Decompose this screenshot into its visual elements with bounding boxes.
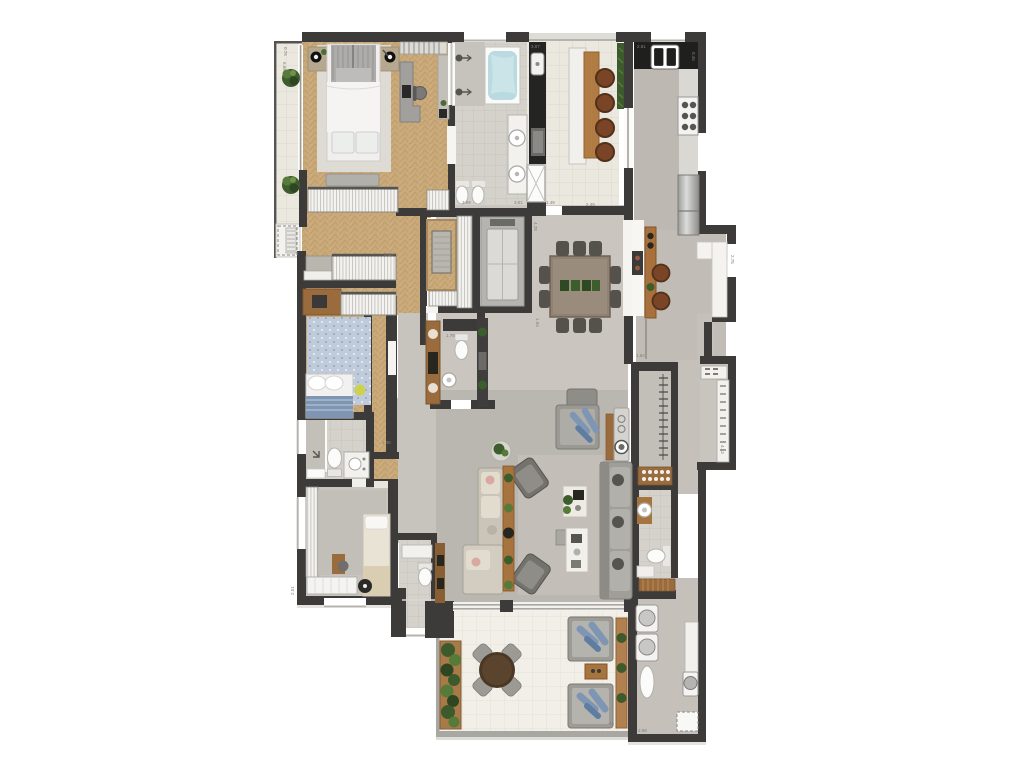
- svg-text:1.94: 1.94: [535, 318, 540, 327]
- svg-text:4.28: 4.28: [533, 222, 538, 231]
- svg-text:1.78: 1.78: [446, 333, 455, 338]
- svg-text:3.50: 3.50: [384, 252, 393, 257]
- svg-text:1.84: 1.84: [636, 353, 645, 358]
- svg-text:1.49: 1.49: [546, 200, 555, 205]
- svg-text:2.49: 2.49: [586, 202, 595, 207]
- svg-text:2.58: 2.58: [638, 728, 647, 733]
- svg-text:2.81: 2.81: [637, 44, 646, 49]
- svg-text:7.63: 7.63: [441, 725, 450, 730]
- svg-text:0.76: 0.76: [283, 47, 288, 56]
- svg-text:0.45: 0.45: [691, 52, 696, 61]
- svg-text:2.75: 2.75: [730, 255, 735, 264]
- svg-text:3.87: 3.87: [531, 44, 540, 49]
- svg-text:3.01: 3.01: [514, 200, 523, 205]
- svg-text:2.51: 2.51: [290, 586, 295, 595]
- svg-text:4.13: 4.13: [720, 445, 725, 454]
- svg-text:1.36: 1.36: [382, 440, 391, 445]
- svg-text:16: 16: [609, 721, 615, 726]
- svg-text:6.68: 6.68: [282, 62, 287, 71]
- svg-text:3.09: 3.09: [462, 200, 471, 205]
